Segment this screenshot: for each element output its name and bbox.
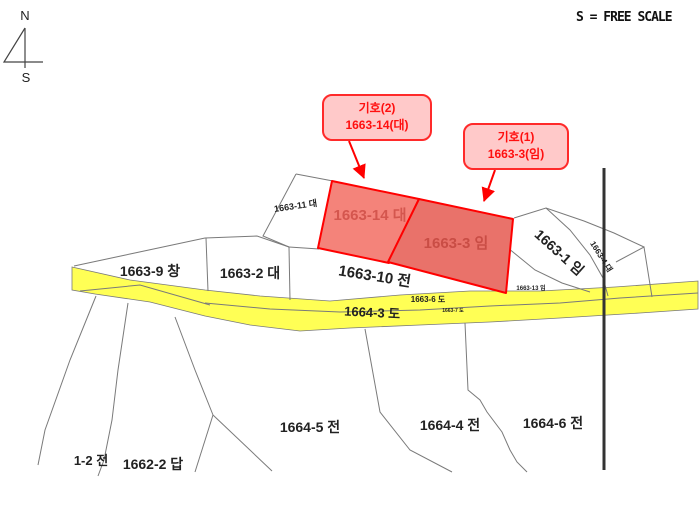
boundary-1664-4-1664-6 (465, 323, 527, 472)
road-label-1663-7: 1663-7 도 (442, 307, 464, 314)
callout-title: 기호(1) (469, 129, 563, 146)
parcel-label-1-2: 1-2 전 (74, 453, 108, 468)
highlight-label-1663-3: 1663-3 임 (424, 235, 489, 252)
boundary-1662-2-1664-5 (175, 317, 213, 415)
parcel-label-1663-10: 1663-10 전 (337, 262, 412, 290)
parcel-label-1664-6: 1664-6 전 (523, 415, 583, 431)
callout-title: 기호(2) (328, 100, 426, 117)
parcel-label-1663-13: 1663-13 임 (516, 284, 545, 292)
callout-arrow-1663-14 (349, 141, 364, 178)
boundary-divider-9-2 (206, 238, 208, 291)
parcel-label-1663-9: 1663-9 창 (120, 263, 180, 279)
parcel-label-1663-1: 1663-1 임 (532, 226, 588, 278)
compass-south-label: S (22, 70, 31, 85)
callout-parcel: 1663-14(대) (328, 117, 426, 134)
compass: N S (4, 8, 43, 85)
parcel-label-1664-5: 1664-5 전 (280, 419, 340, 435)
callout-parcel: 1663-3(임) (469, 146, 563, 163)
parcel-label-1663-2: 1663-2 대 (220, 265, 280, 281)
highlight-label-1663-14: 1663-14 대 (333, 207, 406, 224)
boundary-1-2-1662-2 (98, 303, 128, 476)
compass-north-label: N (20, 8, 29, 23)
callout-1663-14: 기호(2) 1663-14(대) (322, 94, 432, 141)
road-label-1664-3: 1664-3 도 (344, 304, 401, 322)
boundary-fork-right (213, 415, 272, 471)
callout-1663-3: 기호(1) 1663-3(임) (463, 123, 569, 170)
cadastral-map: N S 1663-11 대 1663-9 창 1663-2 대 1663-10 … (0, 0, 700, 523)
callout-arrow-1663-3 (484, 170, 495, 201)
cadastral-map-page: S = FREE SCALE (0, 0, 700, 523)
parcel-label-1662-2: 1662-2 답 (123, 456, 183, 472)
parcel-label-1663-11: 1663-11 대 (273, 197, 317, 214)
parcel-label-1664-4: 1664-4 전 (420, 417, 480, 433)
parcel-label-1663-4: 1663-4 대 (588, 239, 615, 274)
boundary-bottom-outer-left (38, 296, 96, 465)
compass-needle (4, 28, 43, 62)
boundary-strip-bottom (289, 247, 319, 249)
boundary-divider-2-10 (289, 247, 290, 300)
boundary-1664-5-1664-4 (365, 329, 452, 472)
boundary-fork-left (195, 415, 213, 472)
boundary-strip-top (296, 174, 333, 181)
road-label-1663-6: 1663-6 도 (411, 295, 446, 304)
boundary-upper-left (74, 236, 289, 266)
